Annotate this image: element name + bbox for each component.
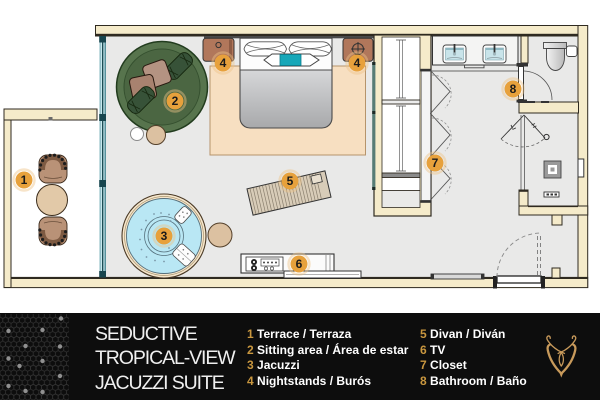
svg-text:6: 6 [296, 257, 303, 271]
svg-text:3: 3 [161, 229, 168, 243]
svg-text:7: 7 [432, 156, 439, 170]
svg-text:2: 2 [172, 94, 179, 108]
svg-text:5: 5 [287, 174, 294, 188]
svg-text:4: 4 [220, 56, 227, 70]
svg-text:4: 4 [354, 56, 361, 70]
svg-text:8: 8 [510, 82, 517, 96]
svg-text:1: 1 [21, 173, 28, 187]
